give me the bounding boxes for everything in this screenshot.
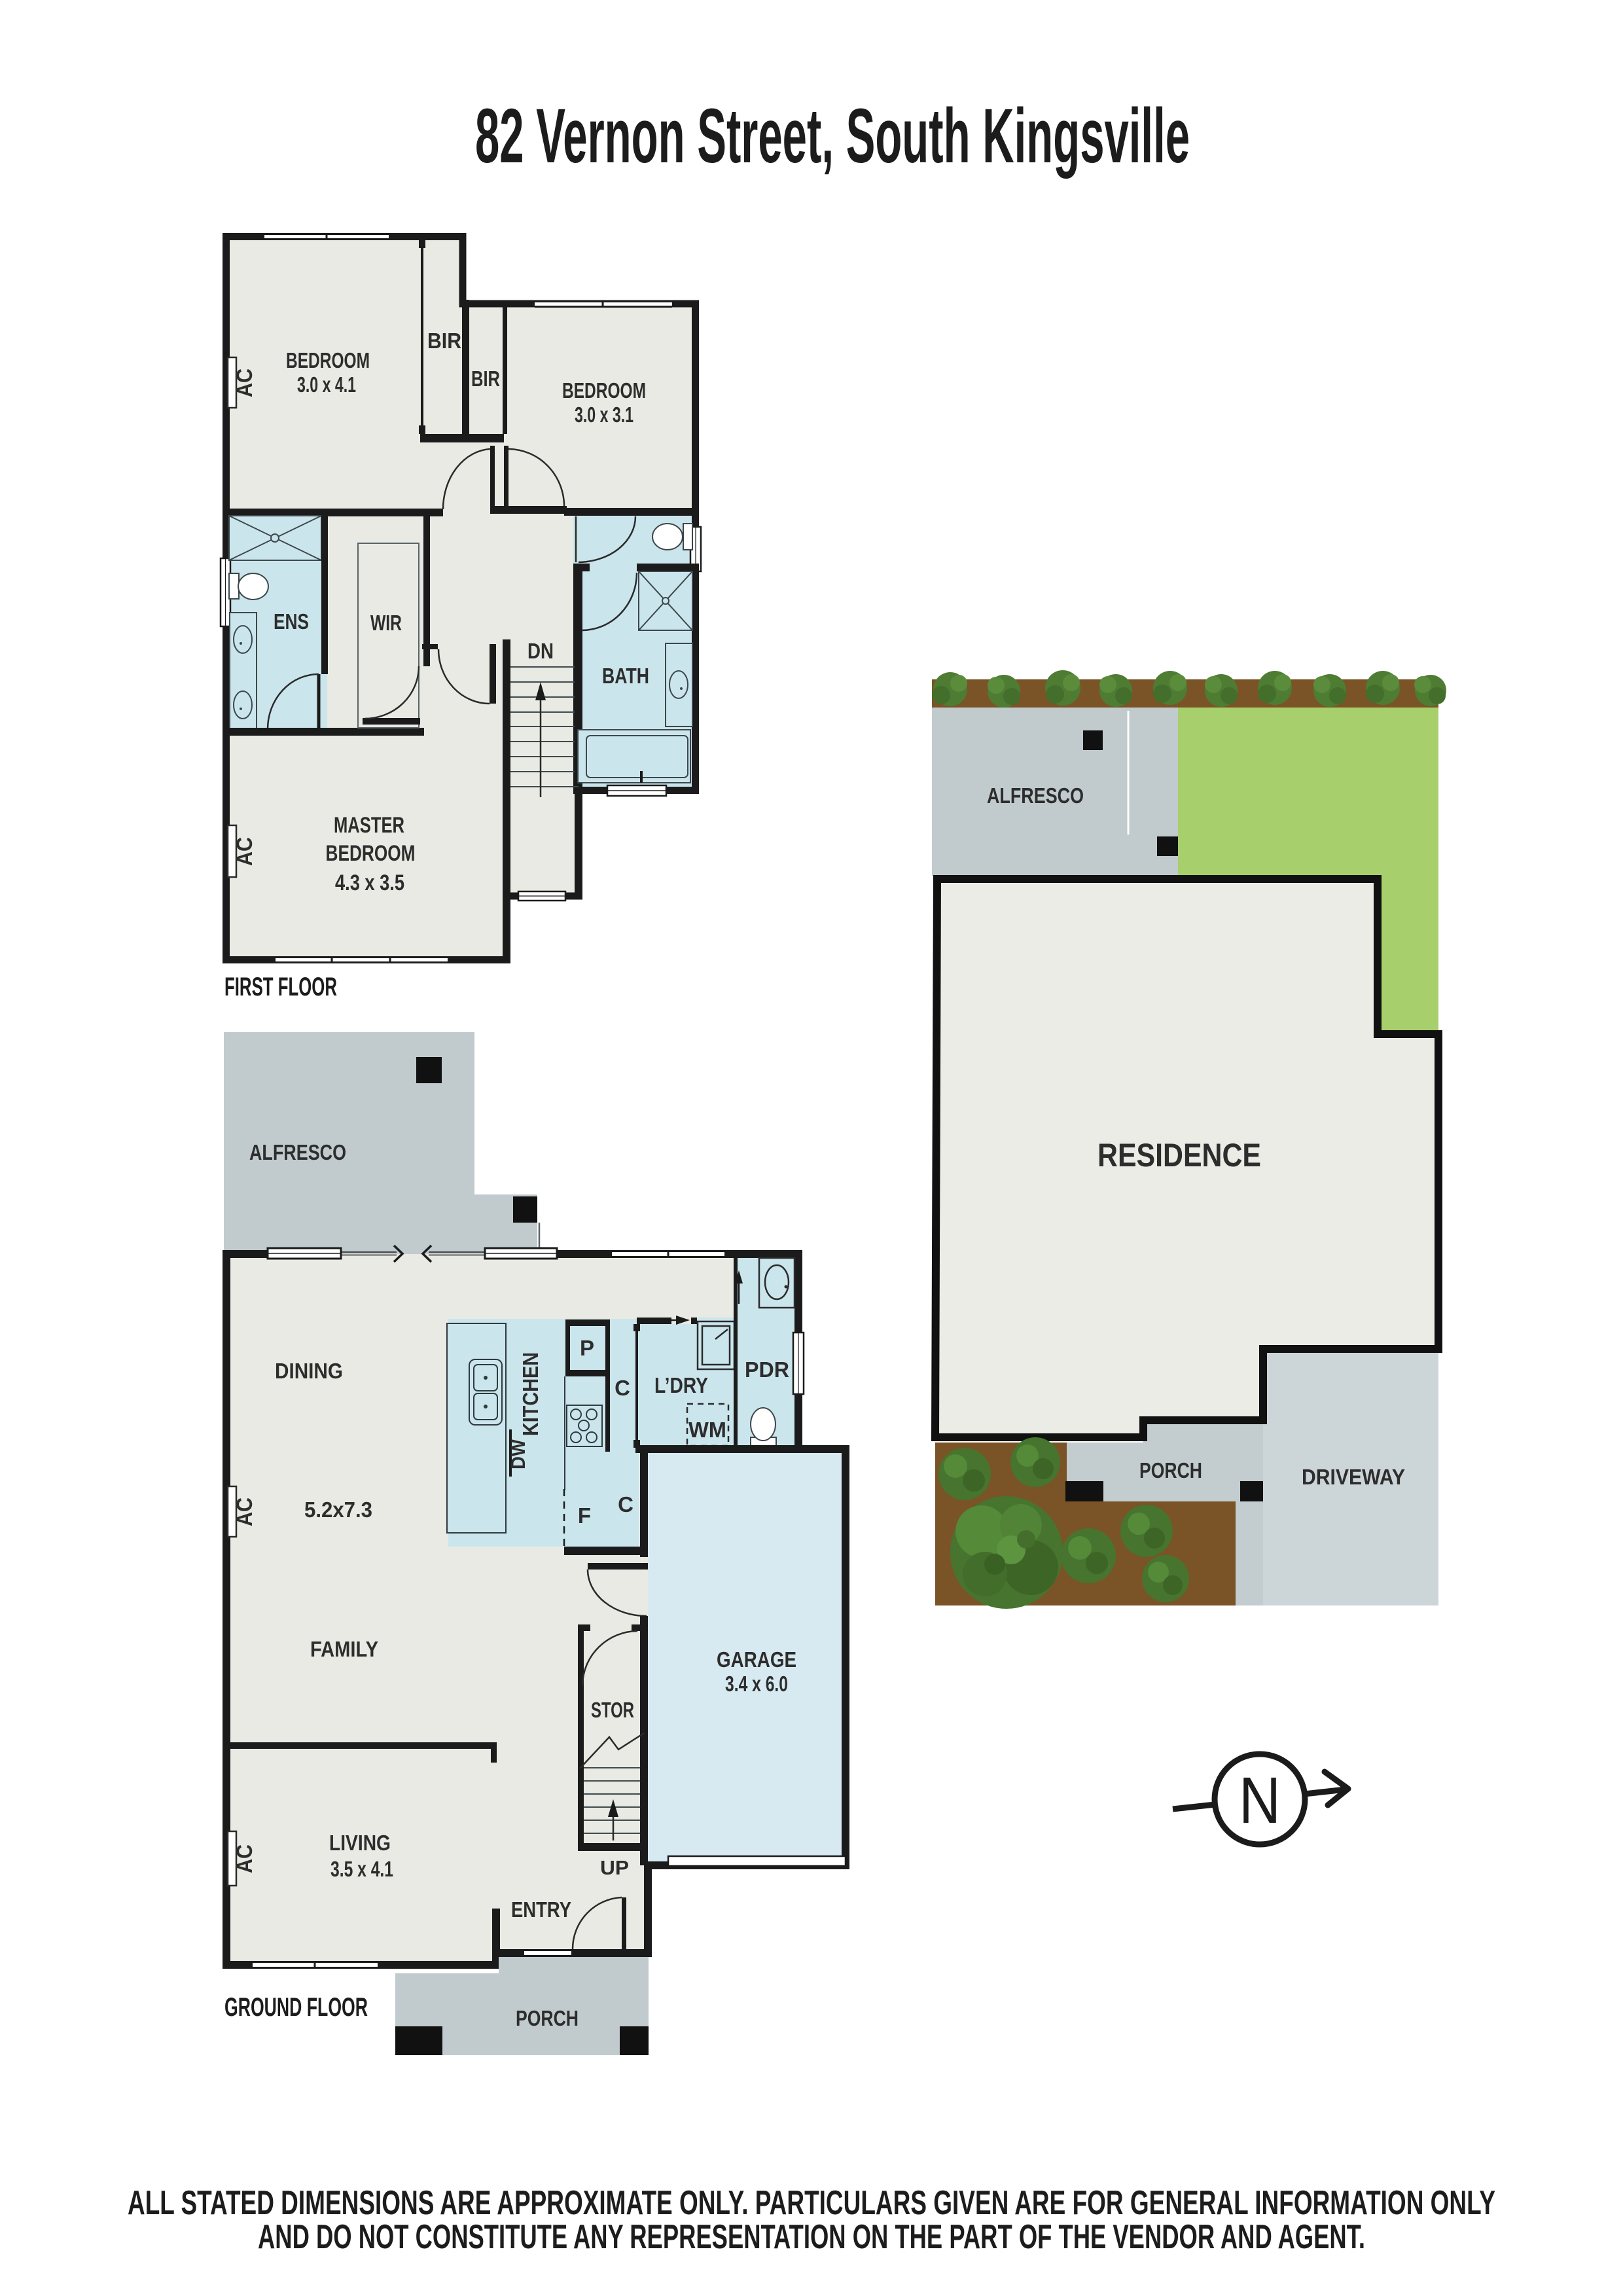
svg-text:AC: AC xyxy=(232,837,257,866)
svg-text:ALFRESCO: ALFRESCO xyxy=(987,783,1084,808)
svg-text:LIVING: LIVING xyxy=(329,1831,391,1855)
svg-text:ALL STATED DIMENSIONS ARE APPR: ALL STATED DIMENSIONS ARE APPROXIMATE ON… xyxy=(128,2184,1495,2222)
svg-text:BIR: BIR xyxy=(471,367,500,391)
svg-text:ENTRY: ENTRY xyxy=(511,1897,571,1922)
svg-text:GROUND FLOOR: GROUND FLOOR xyxy=(224,1993,368,2022)
svg-text:FIRST FLOOR: FIRST FLOOR xyxy=(224,973,337,1001)
svg-text:PDR: PDR xyxy=(745,1357,789,1382)
svg-text:DW: DW xyxy=(507,1439,529,1469)
svg-text:ENS: ENS xyxy=(274,609,309,634)
svg-text:3.0 x 3.1: 3.0 x 3.1 xyxy=(575,403,633,427)
svg-text:P: P xyxy=(580,1336,594,1360)
svg-text:3.0 x 4.1: 3.0 x 4.1 xyxy=(297,372,356,397)
svg-text:FAMILY: FAMILY xyxy=(310,1637,378,1661)
svg-text:UP: UP xyxy=(600,1856,629,1879)
svg-text:PORCH: PORCH xyxy=(1139,1458,1202,1482)
svg-text:BEDROOM: BEDROOM xyxy=(562,378,646,403)
svg-text:RESIDENCE: RESIDENCE xyxy=(1097,1137,1261,1174)
svg-text:BEDROOM: BEDROOM xyxy=(286,348,370,372)
svg-text:3.5 x 4.1: 3.5 x 4.1 xyxy=(330,1857,393,1881)
svg-text:STOR: STOR xyxy=(591,1698,634,1722)
svg-text:DN: DN xyxy=(527,639,554,663)
svg-text:C: C xyxy=(618,1492,633,1516)
svg-text:DINING: DINING xyxy=(275,1359,343,1383)
svg-text:F: F xyxy=(578,1503,591,1528)
svg-text:MASTER: MASTER xyxy=(334,813,404,838)
svg-text:BEDROOM: BEDROOM xyxy=(326,841,416,866)
svg-text:C: C xyxy=(615,1376,630,1400)
svg-text:N: N xyxy=(1239,1764,1281,1837)
svg-text:L’DRY: L’DRY xyxy=(654,1373,708,1397)
svg-text:PORCH: PORCH xyxy=(516,2006,579,2030)
svg-text:AC: AC xyxy=(232,368,257,397)
svg-text:WM: WM xyxy=(688,1418,726,1442)
svg-text:BIR: BIR xyxy=(427,329,461,353)
svg-text:AC: AC xyxy=(232,1498,257,1526)
svg-text:AND DO NOT CONSTITUTE ANY REPR: AND DO NOT CONSTITUTE ANY REPRESENTATION… xyxy=(258,2218,1365,2256)
svg-text:DRIVEWAY: DRIVEWAY xyxy=(1302,1465,1405,1489)
svg-text:4.3 x 3.5: 4.3 x 3.5 xyxy=(335,870,404,895)
svg-text:3.4 x 6.0: 3.4 x 6.0 xyxy=(725,1672,788,1696)
svg-text:ALFRESCO: ALFRESCO xyxy=(249,1140,346,1164)
svg-text:82 Vernon Street, South Kingsv: 82 Vernon Street, South Kingsville xyxy=(475,93,1190,179)
svg-text:KITCHEN: KITCHEN xyxy=(518,1352,543,1436)
svg-text:WIR: WIR xyxy=(370,611,402,635)
svg-text:GARAGE: GARAGE xyxy=(717,1647,796,1672)
svg-text:5.2x7.3: 5.2x7.3 xyxy=(304,1498,372,1522)
svg-text:AC: AC xyxy=(232,1844,257,1873)
svg-text:BATH: BATH xyxy=(602,664,649,688)
